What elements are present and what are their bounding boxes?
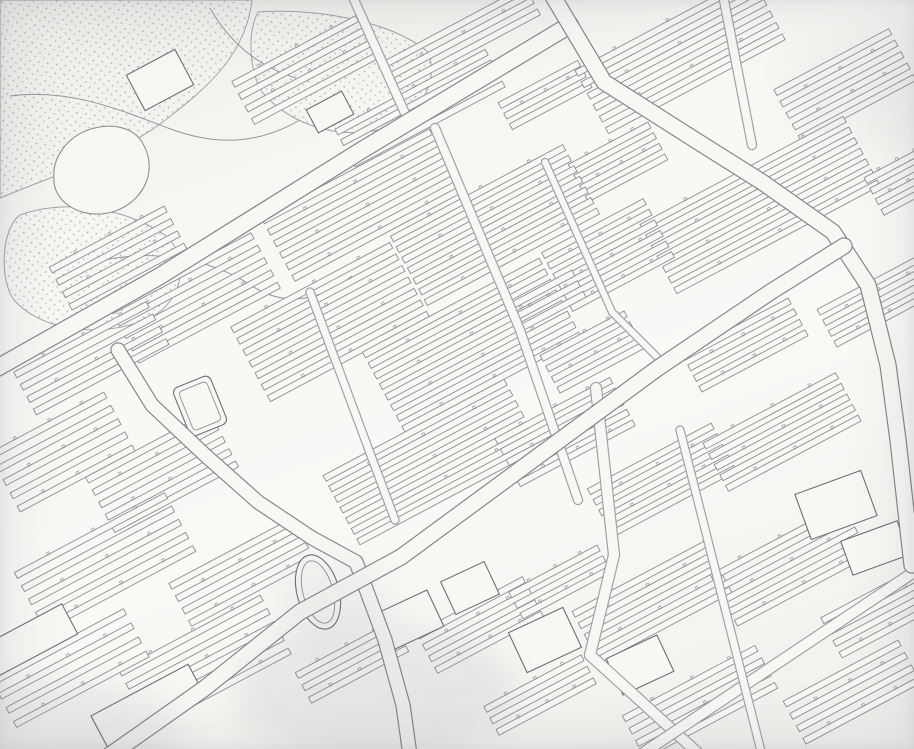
scan-shadow bbox=[780, 30, 914, 150]
building-row-block bbox=[863, 143, 914, 216]
building-row-block bbox=[574, 0, 785, 134]
building-row-block bbox=[702, 371, 861, 492]
building-row-block bbox=[13, 491, 195, 632]
large-building bbox=[795, 470, 877, 539]
minor-street bbox=[723, 0, 752, 145]
scan-shadow bbox=[270, 558, 390, 642]
building-row-block bbox=[783, 640, 914, 744]
large-building bbox=[441, 562, 500, 615]
scanned-map-page bbox=[0, 0, 914, 749]
map-canvas bbox=[0, 0, 914, 749]
